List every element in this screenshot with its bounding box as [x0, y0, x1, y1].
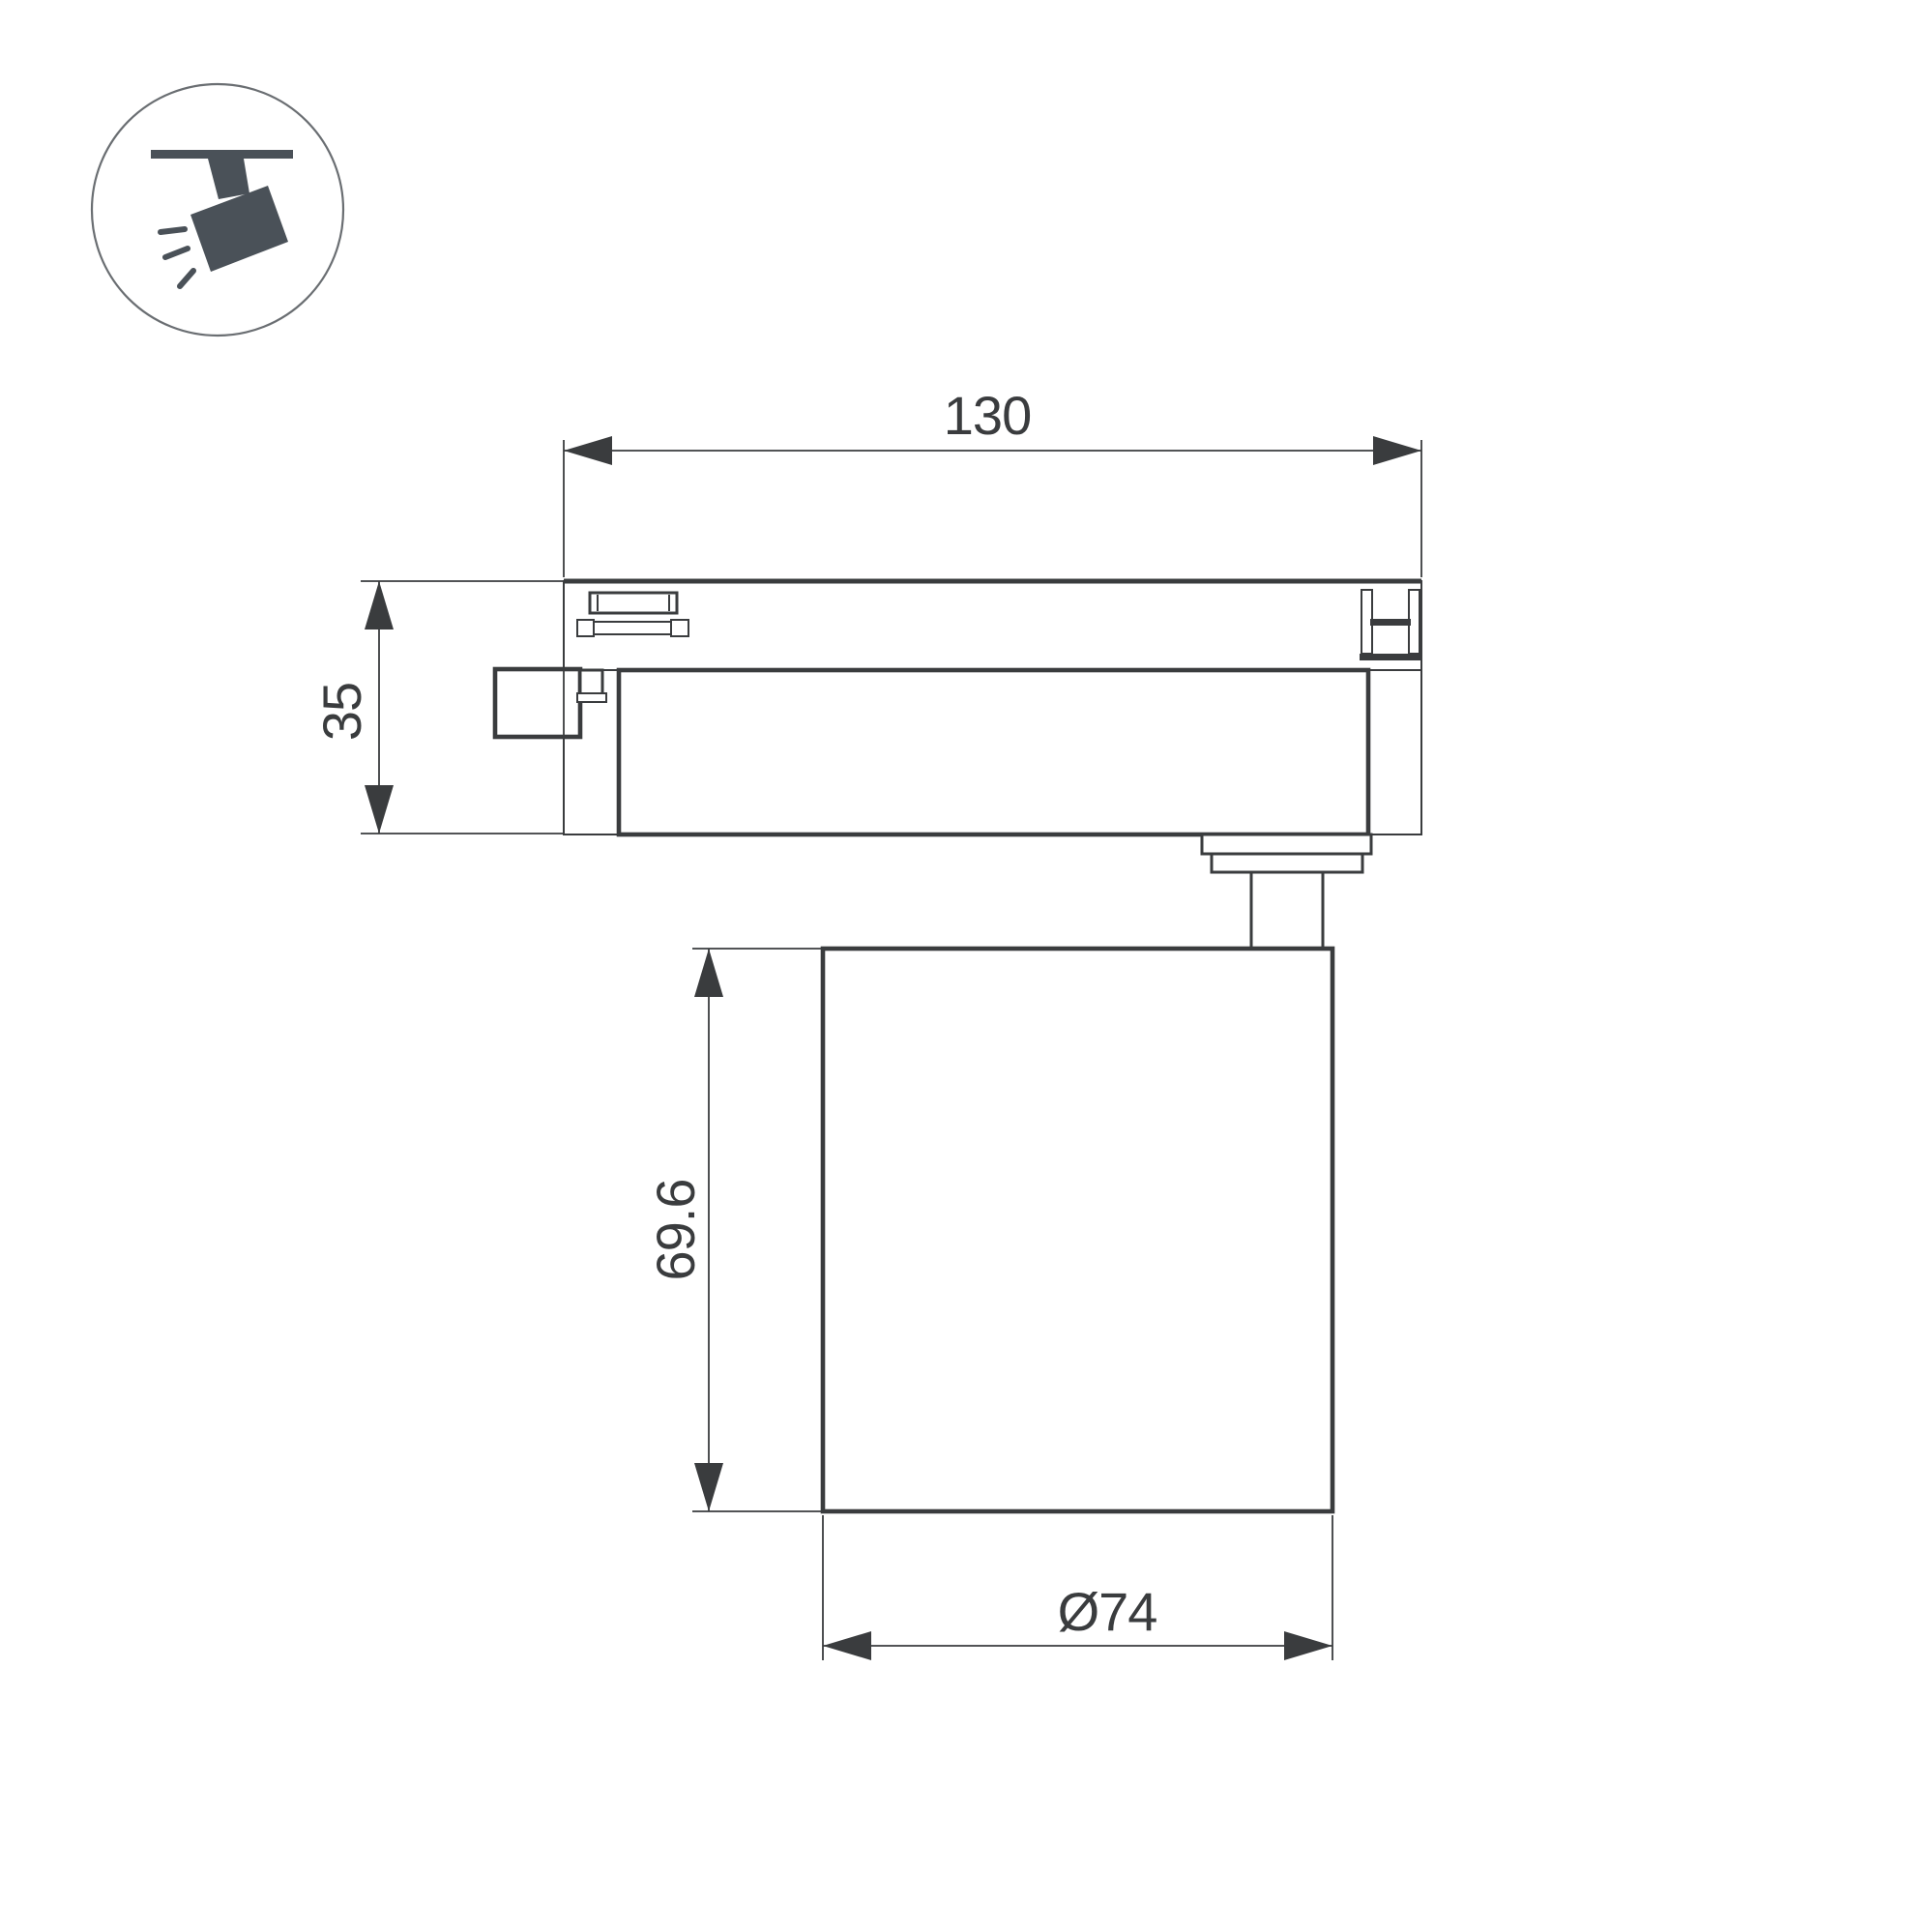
adapter-lower-body: [619, 670, 1368, 834]
arrowhead-right: [1373, 436, 1421, 465]
arrowhead-left: [823, 1631, 871, 1660]
dim-label-d74: Ø74: [1058, 1581, 1157, 1642]
arrowhead-top: [365, 581, 394, 629]
swivel-stem: [1202, 834, 1371, 950]
arrowhead-left: [564, 436, 612, 465]
stem-flange-upper: [1202, 834, 1371, 854]
track-adapter: [495, 581, 1421, 834]
adapter-lock-lever: [495, 669, 580, 737]
track-bar-icon: [151, 150, 293, 159]
lamp-body: [823, 949, 1332, 1511]
dim-label-35: 35: [311, 683, 372, 741]
adapter-clip-upper: [590, 593, 677, 613]
dimension-body-height-69-6: 69.6: [645, 949, 821, 1511]
dimension-width-130: 130: [564, 385, 1421, 577]
track-spotlight-badge: [92, 84, 343, 336]
arrowhead-top: [694, 949, 723, 997]
adapter-clip-lower: [577, 620, 688, 636]
arrowhead-bottom: [694, 1463, 723, 1511]
adapter-latch-bar: [577, 693, 606, 702]
drawing-canvas: 130 35 69.6 Ø74: [0, 0, 1932, 1932]
dim-label-69-6: 69.6: [645, 1180, 706, 1281]
adapter-latch-box: [580, 670, 602, 695]
dimension-drawing: 130 35 69.6 Ø74: [0, 0, 1932, 1932]
dim-label-130: 130: [944, 385, 1031, 446]
arrowhead-bottom: [365, 785, 394, 834]
adapter-contact-bracket: [1360, 590, 1421, 660]
arrowhead-right: [1284, 1631, 1332, 1660]
dimension-diameter-74: Ø74: [823, 1515, 1332, 1660]
stem-flange-lower: [1212, 854, 1362, 872]
stem-neck: [1251, 872, 1323, 950]
